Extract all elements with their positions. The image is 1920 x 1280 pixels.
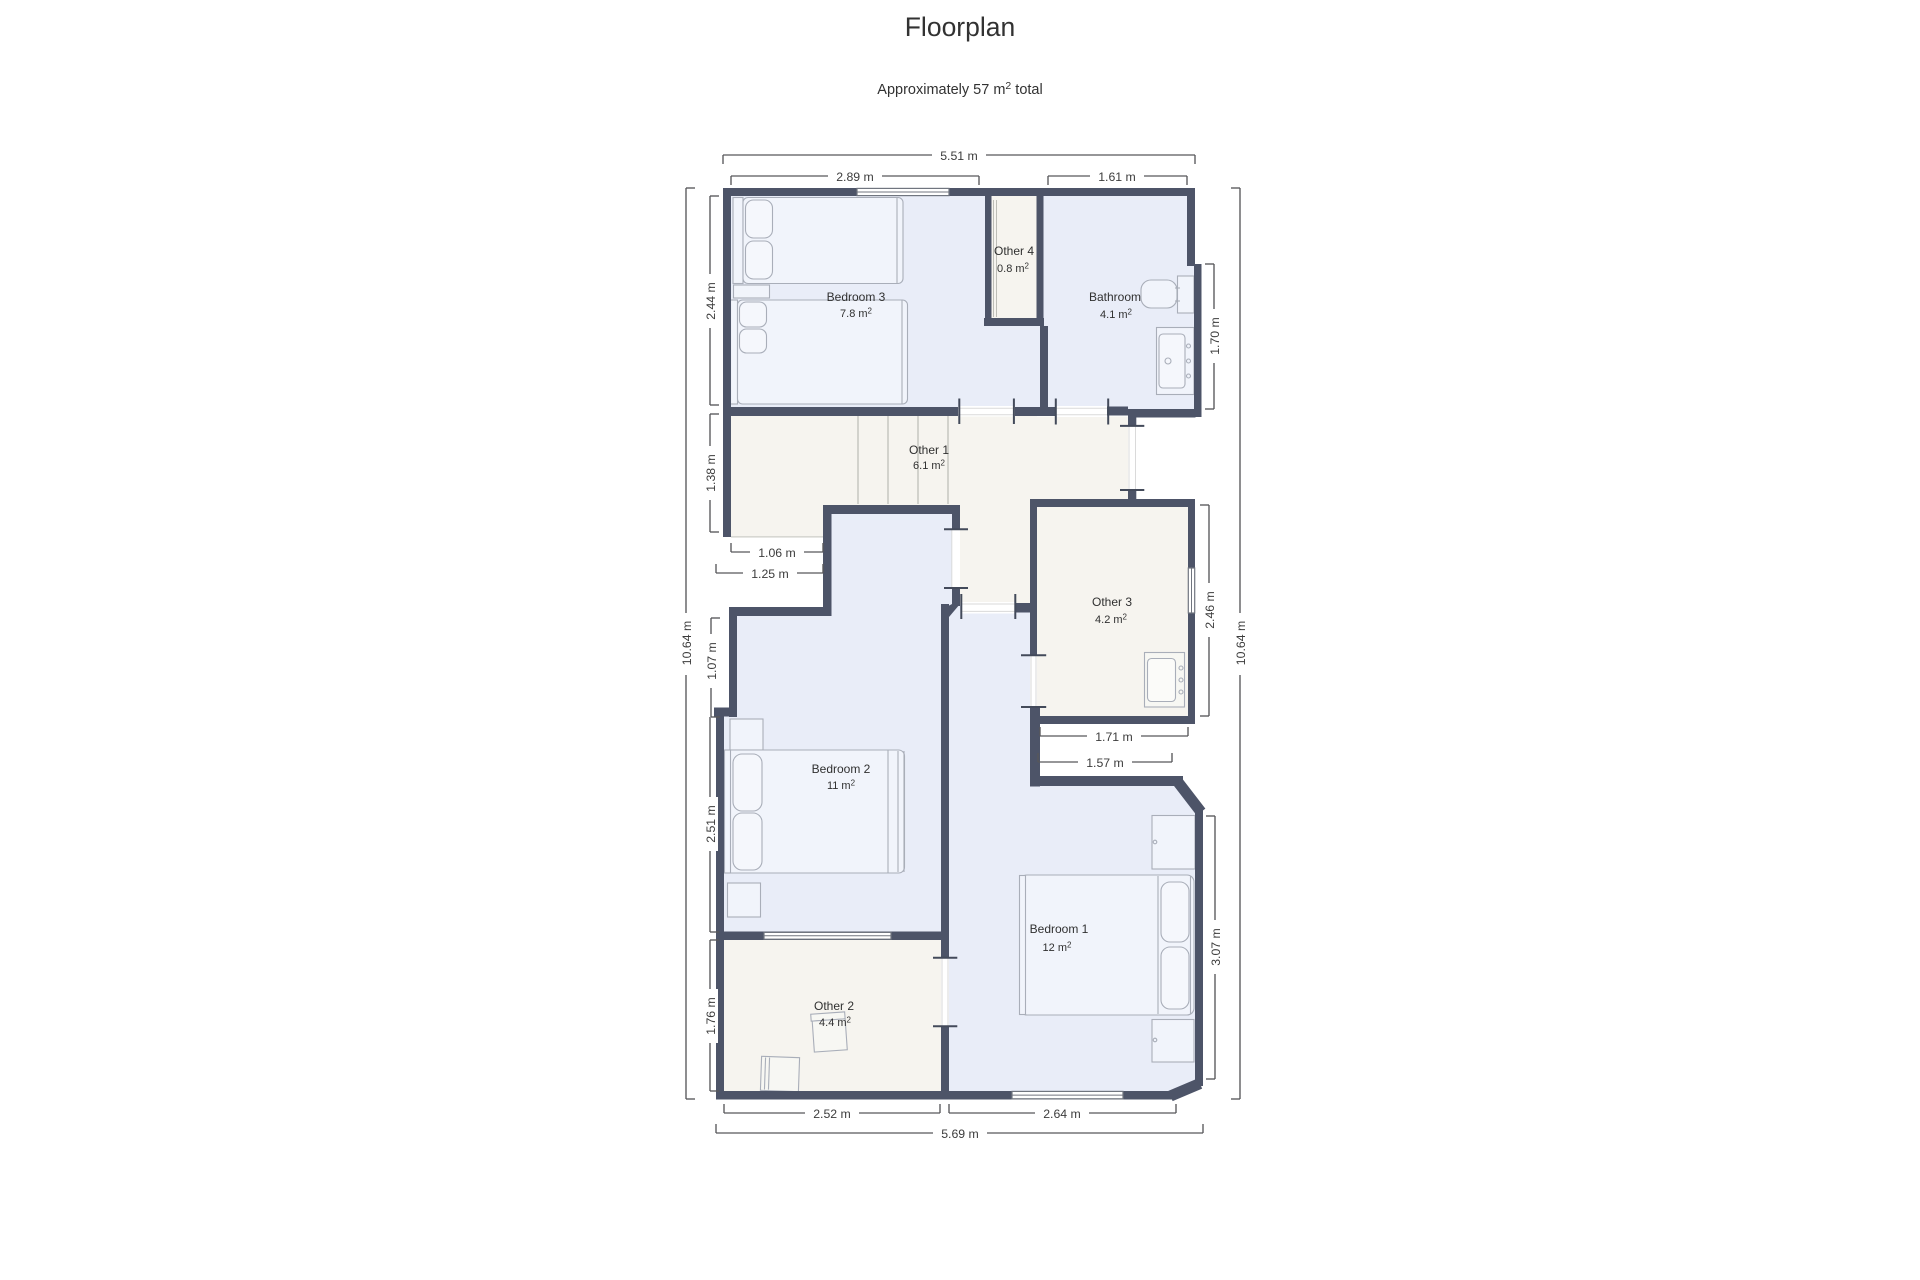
svg-text:10.64 m: 10.64 m bbox=[1234, 621, 1248, 665]
svg-text:Other 4: Other 4 bbox=[994, 244, 1034, 258]
svg-text:Other 3: Other 3 bbox=[1092, 595, 1132, 609]
svg-text:2.46 m: 2.46 m bbox=[1203, 591, 1217, 629]
svg-text:3.07 m: 3.07 m bbox=[1209, 928, 1223, 966]
svg-text:5.51 m: 5.51 m bbox=[940, 149, 978, 163]
svg-text:1.38 m: 1.38 m bbox=[704, 454, 718, 492]
svg-text:Bedroom 2: Bedroom 2 bbox=[812, 762, 871, 776]
svg-text:Bathroom: Bathroom bbox=[1089, 290, 1141, 304]
svg-text:2.89 m: 2.89 m bbox=[836, 170, 874, 184]
svg-text:Bedroom 3: Bedroom 3 bbox=[827, 290, 886, 304]
svg-text:Bedroom 1: Bedroom 1 bbox=[1030, 922, 1089, 936]
svg-text:1.06 m: 1.06 m bbox=[758, 546, 796, 560]
svg-text:1.25 m: 1.25 m bbox=[751, 567, 789, 581]
svg-text:5.69 m: 5.69 m bbox=[941, 1127, 979, 1141]
svg-text:1.76 m: 1.76 m bbox=[704, 997, 718, 1035]
svg-text:1.57 m: 1.57 m bbox=[1086, 756, 1124, 770]
svg-text:Other 2: Other 2 bbox=[814, 999, 854, 1013]
svg-text:2.52 m: 2.52 m bbox=[813, 1107, 851, 1121]
svg-text:1.70 m: 1.70 m bbox=[1208, 317, 1222, 355]
svg-text:1.71 m: 1.71 m bbox=[1095, 730, 1133, 744]
svg-text:10.64 m: 10.64 m bbox=[680, 621, 694, 665]
svg-text:1.61 m: 1.61 m bbox=[1098, 170, 1136, 184]
svg-text:Floorplan: Floorplan bbox=[905, 12, 1015, 42]
svg-text:2.51 m: 2.51 m bbox=[704, 805, 718, 843]
svg-text:1.07 m: 1.07 m bbox=[705, 642, 719, 680]
svg-text:2.44 m: 2.44 m bbox=[704, 282, 718, 320]
svg-text:Approximately 57 m2 total: Approximately 57 m2 total bbox=[877, 80, 1042, 98]
svg-text:Other 1: Other 1 bbox=[909, 443, 949, 457]
svg-text:2.64 m: 2.64 m bbox=[1043, 1107, 1081, 1121]
